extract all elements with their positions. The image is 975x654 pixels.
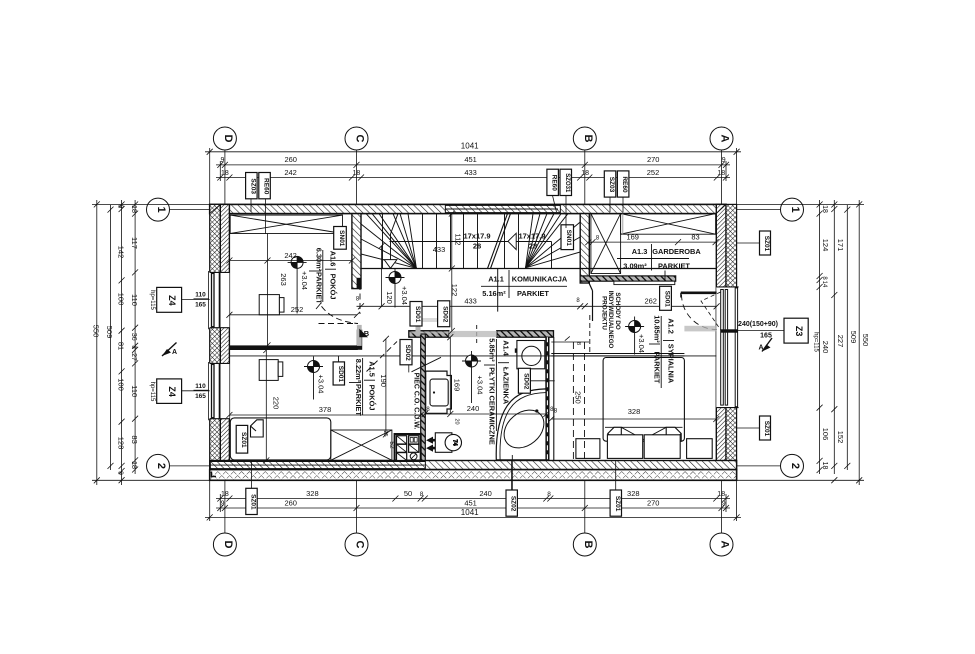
svg-text:18: 18: [717, 491, 725, 498]
svg-text:A1.6: A1.6: [329, 251, 338, 267]
svg-text:Z4: Z4: [167, 295, 177, 306]
svg-text:A: A: [719, 541, 731, 549]
svg-text:252: 252: [291, 305, 304, 314]
svg-text:18: 18: [221, 170, 229, 177]
svg-text:171: 171: [836, 239, 845, 252]
svg-text:433: 433: [464, 296, 477, 305]
svg-text:C: C: [354, 135, 366, 143]
svg-text:28: 28: [473, 242, 481, 251]
svg-text:165: 165: [760, 333, 772, 340]
svg-text:POKÓJ: POKÓJ: [368, 385, 377, 411]
svg-text:B: B: [582, 541, 594, 549]
svg-text:SD01: SD01: [664, 291, 671, 308]
svg-text:250: 250: [574, 391, 583, 404]
svg-text:SZ03: SZ03: [249, 178, 256, 194]
svg-text:A1.2: A1.2: [667, 318, 676, 334]
svg-text:Z4: Z4: [167, 386, 177, 397]
svg-text:18: 18: [130, 205, 137, 213]
svg-text:550: 550: [861, 334, 870, 347]
svg-text:110: 110: [130, 385, 139, 397]
svg-text:120: 120: [385, 291, 394, 304]
svg-text:SD02: SD02: [404, 344, 411, 361]
svg-text:451: 451: [464, 498, 477, 507]
svg-text:100: 100: [116, 378, 125, 391]
svg-text:+3.04: +3.04: [400, 286, 409, 305]
svg-text:+3.04: +3.04: [637, 334, 646, 353]
svg-text:ŁAZIENKA: ŁAZIENKA: [502, 367, 511, 405]
svg-text:SZ01: SZ01: [763, 421, 770, 437]
svg-text:328: 328: [306, 489, 319, 498]
svg-text:240: 240: [479, 489, 492, 498]
svg-text:128: 128: [116, 437, 125, 450]
svg-text:A1.5: A1.5: [368, 361, 377, 377]
svg-text:110: 110: [195, 292, 206, 299]
svg-text:1: 1: [789, 207, 801, 213]
svg-text:433: 433: [464, 168, 477, 177]
svg-text:18: 18: [130, 461, 137, 469]
svg-text:263: 263: [279, 273, 288, 286]
svg-text:122: 122: [450, 284, 459, 297]
svg-text:378: 378: [319, 405, 332, 414]
svg-text:SN01: SN01: [565, 230, 572, 247]
svg-text:hp=115: hp=115: [149, 290, 155, 310]
svg-text:270: 270: [647, 498, 660, 507]
svg-text:260: 260: [284, 498, 297, 507]
svg-text:2: 2: [789, 463, 801, 469]
svg-text:SD01: SD01: [414, 306, 421, 323]
svg-text:9: 9: [221, 157, 225, 164]
svg-text:10.85m²: 10.85m²: [653, 315, 662, 343]
svg-text:270: 270: [647, 155, 660, 164]
svg-text:8.22m²: 8.22m²: [354, 359, 363, 383]
svg-text:PARKIET: PARKIET: [658, 262, 690, 271]
svg-text:117: 117: [130, 237, 139, 249]
svg-text:A1.3: A1.3: [632, 247, 648, 256]
svg-text:hp=115: hp=115: [813, 332, 819, 352]
svg-text:25: 25: [382, 430, 388, 436]
svg-text:242: 242: [284, 168, 297, 177]
svg-text:8: 8: [420, 491, 424, 498]
svg-text:A: A: [719, 135, 731, 143]
svg-text:52: 52: [388, 441, 395, 449]
svg-text:18: 18: [353, 170, 361, 177]
svg-text:1041: 1041: [461, 142, 479, 151]
svg-text:PARKIET: PARKIET: [315, 272, 324, 304]
svg-text:B: B: [582, 135, 594, 143]
svg-text:9: 9: [722, 500, 726, 507]
svg-text:165: 165: [195, 393, 206, 400]
svg-text:18: 18: [581, 170, 589, 177]
svg-text:262: 262: [644, 296, 657, 305]
svg-text:A1.4: A1.4: [502, 340, 511, 357]
svg-text:18: 18: [221, 491, 229, 498]
svg-text:240: 240: [467, 404, 480, 413]
svg-text:SYPIALNIA: SYPIALNIA: [667, 344, 676, 384]
svg-text:Z3: Z3: [794, 326, 804, 337]
svg-text:RE60: RE60: [551, 175, 558, 192]
svg-text:242: 242: [284, 251, 297, 260]
svg-text:RE60: RE60: [621, 176, 628, 193]
svg-text:9: 9: [116, 204, 123, 208]
svg-text:18: 18: [821, 462, 828, 470]
svg-text:1041: 1041: [461, 508, 479, 517]
svg-text:D: D: [222, 541, 234, 549]
svg-text:17x17.9: 17x17.9: [463, 232, 490, 241]
svg-text:9: 9: [722, 157, 726, 164]
svg-text:B: B: [364, 329, 370, 338]
svg-text:PARKIET: PARKIET: [653, 352, 662, 384]
svg-text:240(150+90): 240(150+90): [738, 321, 778, 328]
svg-text:SZO31: SZO31: [564, 173, 570, 193]
svg-text:124: 124: [821, 239, 830, 252]
svg-text:9: 9: [221, 500, 225, 507]
svg-text:83: 83: [691, 232, 699, 241]
svg-text:GARDEROBA: GARDEROBA: [652, 247, 701, 256]
svg-text:+3.04: +3.04: [476, 376, 485, 395]
svg-text:169: 169: [452, 379, 461, 392]
svg-text:112: 112: [453, 234, 462, 246]
svg-text:240: 240: [821, 341, 830, 354]
svg-text:110: 110: [195, 383, 206, 390]
svg-text:152: 152: [836, 431, 845, 444]
svg-text:5.85m²: 5.85m²: [488, 338, 497, 362]
svg-text:451: 451: [464, 155, 477, 164]
svg-text:PROJEKTU: PROJEKTU: [601, 296, 608, 330]
svg-text:17x17.9: 17x17.9: [518, 232, 545, 241]
svg-text:18: 18: [717, 170, 725, 177]
svg-text:110: 110: [130, 294, 139, 306]
svg-text:SN01: SN01: [338, 230, 345, 247]
svg-text:36: 36: [130, 333, 137, 341]
svg-text:SZ02: SZ02: [510, 496, 517, 512]
svg-text:433: 433: [433, 245, 446, 254]
svg-text:8: 8: [575, 342, 581, 345]
svg-text:165: 165: [195, 302, 206, 309]
svg-text:74: 74: [451, 440, 457, 446]
svg-text:+3.04: +3.04: [300, 271, 309, 290]
svg-text:8: 8: [547, 491, 551, 498]
svg-text:509: 509: [105, 326, 114, 339]
svg-text:SZ01: SZ01: [614, 496, 621, 512]
svg-text:D: D: [222, 135, 234, 143]
svg-text:252: 252: [647, 168, 660, 177]
svg-text:+3.04: +3.04: [317, 375, 326, 394]
svg-text:SZ01: SZ01: [250, 494, 257, 510]
svg-text:SZ03: SZ03: [608, 177, 615, 193]
svg-text:PIEC C.O. C.U.W.: PIEC C.O. C.U.W.: [413, 373, 420, 430]
svg-text:SD02: SD02: [442, 306, 449, 323]
svg-text:550: 550: [92, 325, 101, 338]
svg-text:169: 169: [626, 232, 639, 241]
svg-text:RE60: RE60: [263, 178, 270, 195]
svg-text:SZ01: SZ01: [763, 236, 770, 252]
svg-text:50: 50: [404, 489, 412, 498]
svg-text:SCHODY DO: SCHODY DO: [614, 292, 621, 330]
svg-text:28: 28: [529, 242, 537, 251]
svg-text:27: 27: [130, 353, 137, 361]
svg-text:14: 14: [821, 281, 827, 288]
svg-text:328: 328: [628, 407, 641, 416]
svg-text:KOMUNIKACJA: KOMUNIKACJA: [512, 275, 568, 284]
svg-text:142: 142: [116, 246, 125, 259]
svg-text:POKÓJ: POKÓJ: [329, 274, 338, 300]
svg-text:PARKIET: PARKIET: [354, 384, 363, 416]
svg-text:106: 106: [821, 428, 830, 441]
svg-text:190: 190: [379, 374, 388, 387]
svg-text:6.30m²: 6.30m²: [315, 248, 324, 272]
svg-text:100: 100: [116, 293, 125, 306]
svg-text:20: 20: [454, 418, 460, 424]
svg-text:PŁYTKI CERAMICZNE: PŁYTKI CERAMICZNE: [488, 367, 497, 445]
svg-text:5.16m²: 5.16m²: [482, 289, 506, 298]
svg-text:1: 1: [155, 207, 167, 213]
svg-text:A1.1: A1.1: [488, 275, 504, 284]
svg-text:227: 227: [836, 335, 845, 348]
svg-text:220: 220: [272, 397, 281, 410]
svg-text:SD01: SD01: [337, 366, 344, 383]
svg-text:PARKIET: PARKIET: [517, 289, 549, 298]
svg-text:hp=115: hp=115: [149, 382, 155, 402]
svg-text:18: 18: [821, 205, 828, 213]
svg-text:A: A: [172, 349, 177, 356]
svg-text:260: 260: [284, 155, 297, 164]
svg-text:9: 9: [116, 471, 123, 475]
svg-text:SD02: SD02: [522, 373, 529, 390]
svg-text:2: 2: [155, 463, 167, 469]
svg-text:3.09m²: 3.09m²: [623, 262, 647, 271]
svg-text:SZ01: SZ01: [240, 432, 247, 448]
svg-text:A: A: [758, 345, 763, 352]
svg-text:81: 81: [116, 342, 125, 350]
svg-text:328: 328: [627, 489, 640, 498]
svg-text:83: 83: [130, 435, 139, 443]
svg-text:C: C: [354, 541, 366, 549]
svg-text:509: 509: [849, 331, 858, 344]
